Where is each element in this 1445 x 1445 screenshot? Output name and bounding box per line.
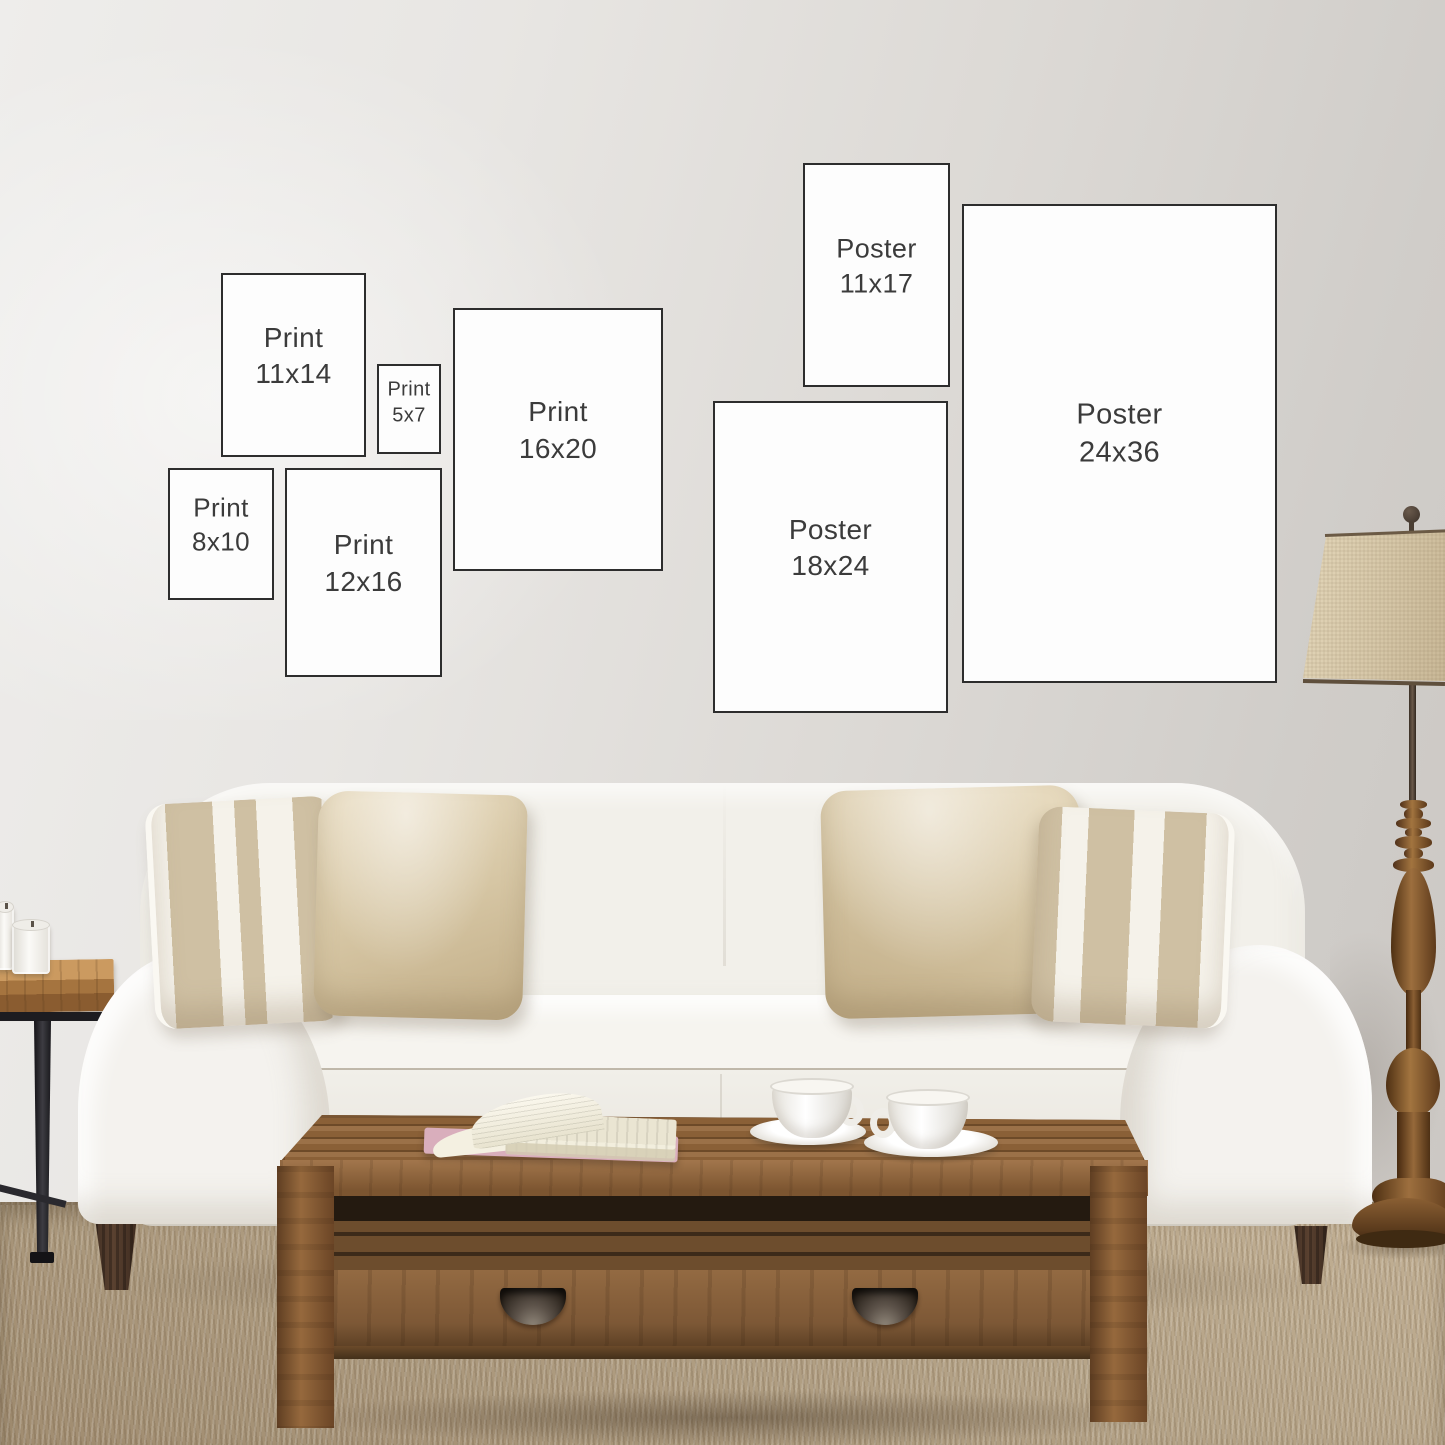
lamp-turning (1404, 848, 1423, 859)
table-apron (280, 1160, 1148, 1196)
saucer (750, 1118, 866, 1145)
side-table-apron (0, 1012, 108, 1021)
book-page (431, 1114, 593, 1159)
saucer (864, 1128, 998, 1157)
lamp-rod (1409, 684, 1416, 802)
size-box-label: Poster 24x36 (1076, 397, 1162, 472)
candle (12, 924, 50, 974)
size-box-poster-18x24: Poster 18x24 (713, 401, 948, 713)
cup-shadow (862, 1144, 1002, 1164)
lamp-shade (1303, 532, 1445, 684)
book-page-block (505, 1112, 677, 1161)
side-table-top (0, 959, 114, 1013)
lamp-turning (1405, 828, 1422, 837)
sofa-wall-shadow (1330, 930, 1445, 1220)
lamp-finial-ball (1403, 506, 1420, 523)
lamp-turning (1396, 818, 1431, 829)
cup-handle (870, 1108, 896, 1138)
lamp-turning (1400, 800, 1427, 809)
lamp-turning (1404, 808, 1423, 820)
book-cover (424, 1128, 679, 1163)
size-box-label: Poster 11x17 (836, 231, 916, 301)
living-room-mockup: Print 11x14 Print 5x7 Print 16x20 Print … (0, 0, 1445, 1445)
teacup (772, 1085, 852, 1138)
linen-pillow-left (313, 790, 528, 1020)
striped-pillow-right (1030, 806, 1235, 1029)
candle (0, 906, 14, 970)
lamp-shade-rim (1325, 529, 1445, 537)
book-lifted-page (467, 1086, 604, 1150)
size-box-label: Poster 18x24 (789, 512, 872, 585)
size-box-poster-11x17: Poster 11x17 (803, 163, 950, 387)
lamp-turning (1393, 858, 1434, 872)
lamp-turning (1395, 836, 1432, 849)
teacup (888, 1096, 968, 1149)
table-top (280, 1113, 1148, 1167)
wall-light-glow (0, 0, 680, 720)
size-box-poster-24x36: Poster 24x36 (962, 204, 1277, 683)
jute-rug (0, 1202, 1445, 1445)
lamp-finial-stem (1409, 521, 1414, 536)
cup-shadow (748, 1134, 870, 1152)
lamp-shade-rim (1303, 679, 1445, 686)
cup-handle (838, 1096, 864, 1126)
